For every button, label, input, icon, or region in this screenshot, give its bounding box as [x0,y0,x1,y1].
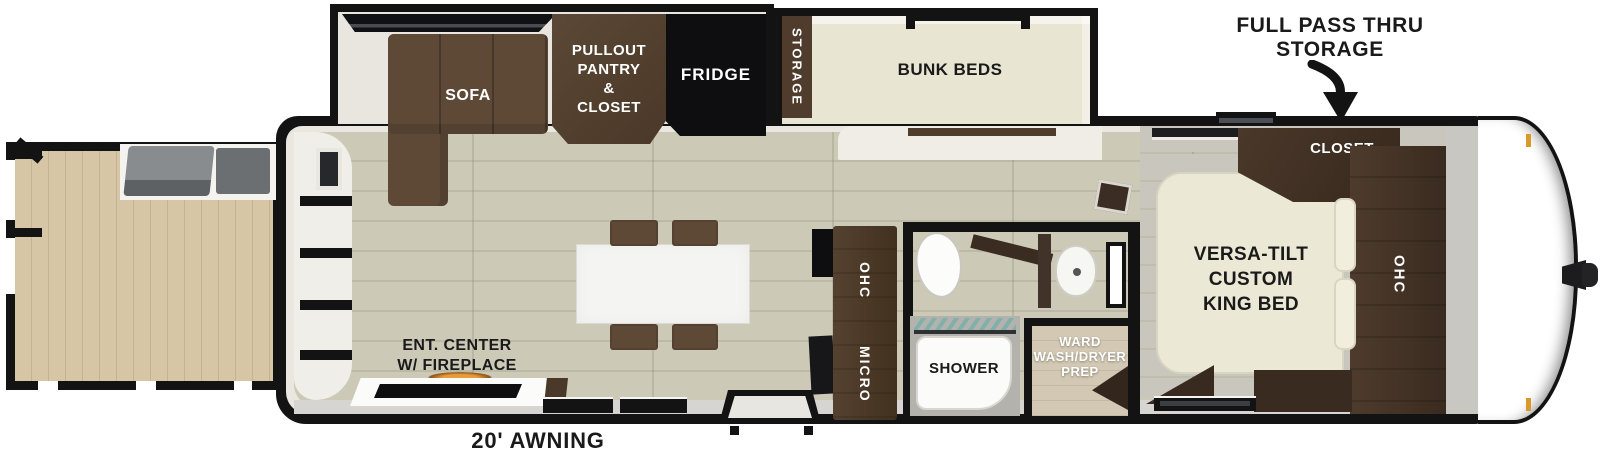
tv [812,229,834,277]
marker-light [1526,398,1531,411]
front-wall-band [1446,126,1480,414]
rear-step [300,248,352,258]
storage-label: STORAGE [790,28,805,106]
chair [672,324,718,350]
pantry-label-line2: PANTRY [552,60,666,79]
slideout-window [342,14,556,32]
awning-bracket [730,426,739,435]
full-pass-thru-line2: STORAGE [1210,38,1450,62]
chair [672,220,718,246]
ent-center-label-line1: ENT. CENTER [372,336,542,356]
bathroom-wall [903,222,1135,232]
king-bed-label-line3: KING BED [1166,292,1336,317]
pillow [1334,278,1356,350]
bunk-beds-label: BUNK BEDS [846,60,1054,80]
sofa-label: SOFA [408,86,528,105]
shower-glass-door [914,330,1016,334]
outdoor-cabinet [216,148,270,194]
deck-railing-post [10,228,42,237]
awning-bracket [804,426,813,435]
ohc-bedroom-label: OHC [1386,240,1412,310]
ward-label: WARD WASH/DRYER PREP [1032,334,1128,379]
storage-cabinet: STORAGE [782,16,812,118]
fridge: FRIDGE [666,14,766,136]
marker-light [1526,134,1531,147]
hitch-coupler-knob [1582,263,1598,287]
pillow [1334,198,1356,272]
corner-shelf-side [1038,234,1051,308]
rear-step [300,300,352,310]
micro-label: MICRO [851,338,879,410]
full-pass-thru-storage-label: FULL PASS THRU STORAGE [1210,14,1450,62]
sofa [388,34,548,134]
awning-label: 20' AWNING [418,428,658,452]
entry-door-well [728,396,812,418]
chair [610,324,658,350]
king-bed-label: VERSA-TILT CUSTOM KING BED [1166,242,1336,317]
deck-railing-gap [234,381,252,390]
pantry-label-line4: CLOSET [552,98,666,117]
bunk-handle [906,16,1030,25]
window [543,397,613,413]
ohc-kitchen-label: OHC [851,250,879,312]
ward-label-line2: WASH/DRYER [1032,349,1128,364]
pantry-label-line1: PULLOUT [552,41,666,60]
rv-floorplan-diagram: STORAGE BUNK BEDS SOFA PULLOUT PANTRY & … [0,0,1600,452]
ent-center-label: ENT. CENTER W/ FIREPLACE [372,336,542,376]
wardrobe-room-wall [1024,318,1136,326]
sink-drain [1073,268,1081,276]
rear-step [300,196,352,206]
rear-step [300,350,352,360]
king-bed-label-line1: VERSA-TILT [1166,242,1336,267]
pullout-pantry-closet: PULLOUT PANTRY & CLOSET [552,14,666,144]
bedroom-tv [1094,179,1133,214]
bathroom-window [1106,242,1126,308]
storage-arrow-icon [1298,60,1370,128]
rear-window [316,148,342,190]
window-glass [1160,401,1250,406]
deck-railing-gap [38,381,58,390]
king-bed-label-line2: CUSTOM [1166,267,1336,292]
tv [374,384,522,398]
outdoor-grill [123,146,214,196]
footboard-cabinet [1254,370,1352,412]
pantry-label-line3: & [552,79,666,98]
oven [808,335,835,394]
ward-label-line1: WARD [1032,334,1128,349]
deck-railing-gap [6,160,15,220]
deck-railing-gap [136,381,156,390]
fridge-label: FRIDGE [681,65,751,85]
window-glass [1219,118,1273,123]
island-table [576,244,750,324]
shower-label: SHOWER [916,360,1012,377]
full-pass-thru-line1: FULL PASS THRU [1210,14,1450,38]
chair [610,220,658,246]
deck-railing-gap [6,238,15,294]
kitchen-counter-edge [908,128,1056,136]
wardrobe-room-wall [1024,318,1032,418]
window [620,397,687,413]
